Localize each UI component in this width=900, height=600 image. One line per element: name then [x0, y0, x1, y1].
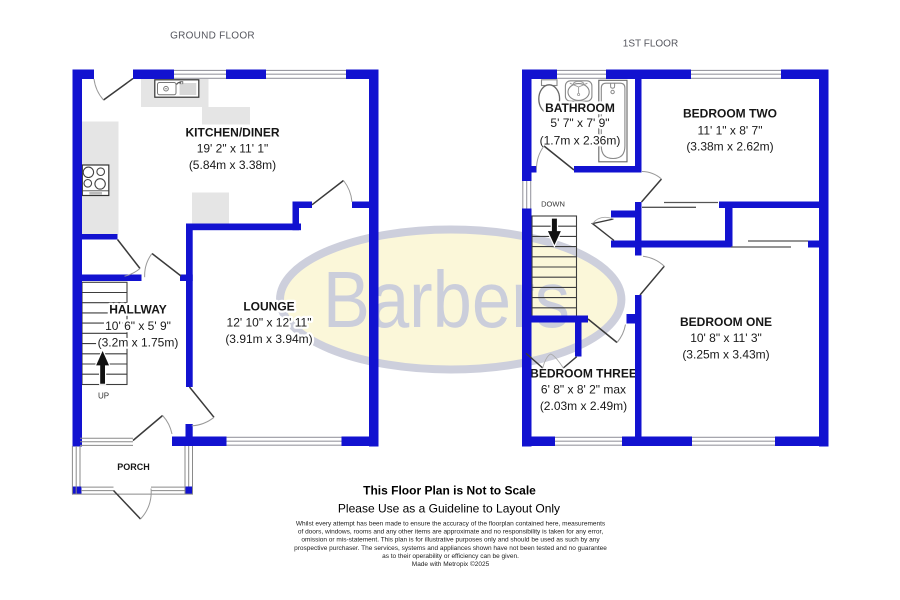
svg-text:BATHROOM: BATHROOM — [545, 101, 615, 115]
svg-text:(3.2m x 1.75m): (3.2m x 1.75m) — [98, 335, 179, 349]
svg-text:10' 8" x 11' 3": 10' 8" x 11' 3" — [690, 331, 762, 345]
svg-text:10' 6" x 5' 9": 10' 6" x 5' 9" — [105, 319, 171, 333]
svg-text:12' 10" x 12' 11": 12' 10" x 12' 11" — [227, 316, 312, 330]
svg-text:(5.84m x 3.38m): (5.84m x 3.38m) — [189, 158, 276, 172]
svg-text:BEDROOM TWO: BEDROOM TWO — [683, 106, 777, 120]
svg-text:1ST FLOOR: 1ST FLOOR — [623, 39, 678, 50]
svg-text:BEDROOM THREE: BEDROOM THREE — [530, 366, 637, 380]
svg-text:of doors, windows, rooms and a: of doors, windows, rooms and any other i… — [298, 529, 603, 536]
svg-text:(1.7m x 2.36m): (1.7m x 2.36m) — [540, 134, 621, 148]
svg-text:HALLWAY: HALLWAY — [109, 303, 167, 317]
svg-text:6' 8" x 8' 2" max: 6' 8" x 8' 2" max — [541, 382, 626, 396]
svg-text:LOUNGE: LOUNGE — [243, 300, 294, 314]
svg-text:DOWN: DOWN — [541, 200, 565, 209]
svg-text:Barbers: Barbers — [323, 255, 570, 344]
svg-text:prospective purchaser. The ser: prospective purchaser. The services, sys… — [294, 545, 607, 552]
svg-text:Whilst every attempt has been: Whilst every attempt has been made to en… — [296, 521, 606, 528]
svg-text:omission or mis-statement. Thi: omission or mis-statement. This plan is … — [301, 537, 600, 544]
svg-text:11' 1" x 8' 7": 11' 1" x 8' 7" — [698, 123, 763, 137]
svg-text:(3.91m x 3.94m): (3.91m x 3.94m) — [225, 332, 312, 346]
svg-text:(2.03m x 2.49m): (2.03m x 2.49m) — [540, 399, 627, 413]
svg-text:(3.38m x 2.62m): (3.38m x 2.62m) — [686, 139, 773, 153]
svg-text:5' 7" x 7' 9": 5' 7" x 7' 9" — [550, 116, 609, 130]
svg-text:(3.25m x 3.43m): (3.25m x 3.43m) — [682, 348, 769, 362]
svg-text:PORCH: PORCH — [117, 462, 150, 472]
svg-text:as to their operability or eff: as to their operability or efficiency ca… — [382, 553, 519, 560]
svg-text:UP: UP — [98, 392, 109, 401]
svg-text:KITCHEN/DINER: KITCHEN/DINER — [185, 126, 279, 140]
svg-text:This Floor Plan is Not to Scal: This Floor Plan is Not to Scale — [363, 484, 536, 498]
svg-text:Made with Metropix ©2025: Made with Metropix ©2025 — [412, 560, 490, 568]
svg-text:19' 2" x 11' 1": 19' 2" x 11' 1" — [197, 142, 269, 156]
svg-text:GROUND FLOOR: GROUND FLOOR — [170, 31, 255, 42]
svg-text:Please Use as a Guideline to L: Please Use as a Guideline to Layout Only — [338, 501, 560, 515]
svg-text:BEDROOM ONE: BEDROOM ONE — [680, 315, 772, 329]
